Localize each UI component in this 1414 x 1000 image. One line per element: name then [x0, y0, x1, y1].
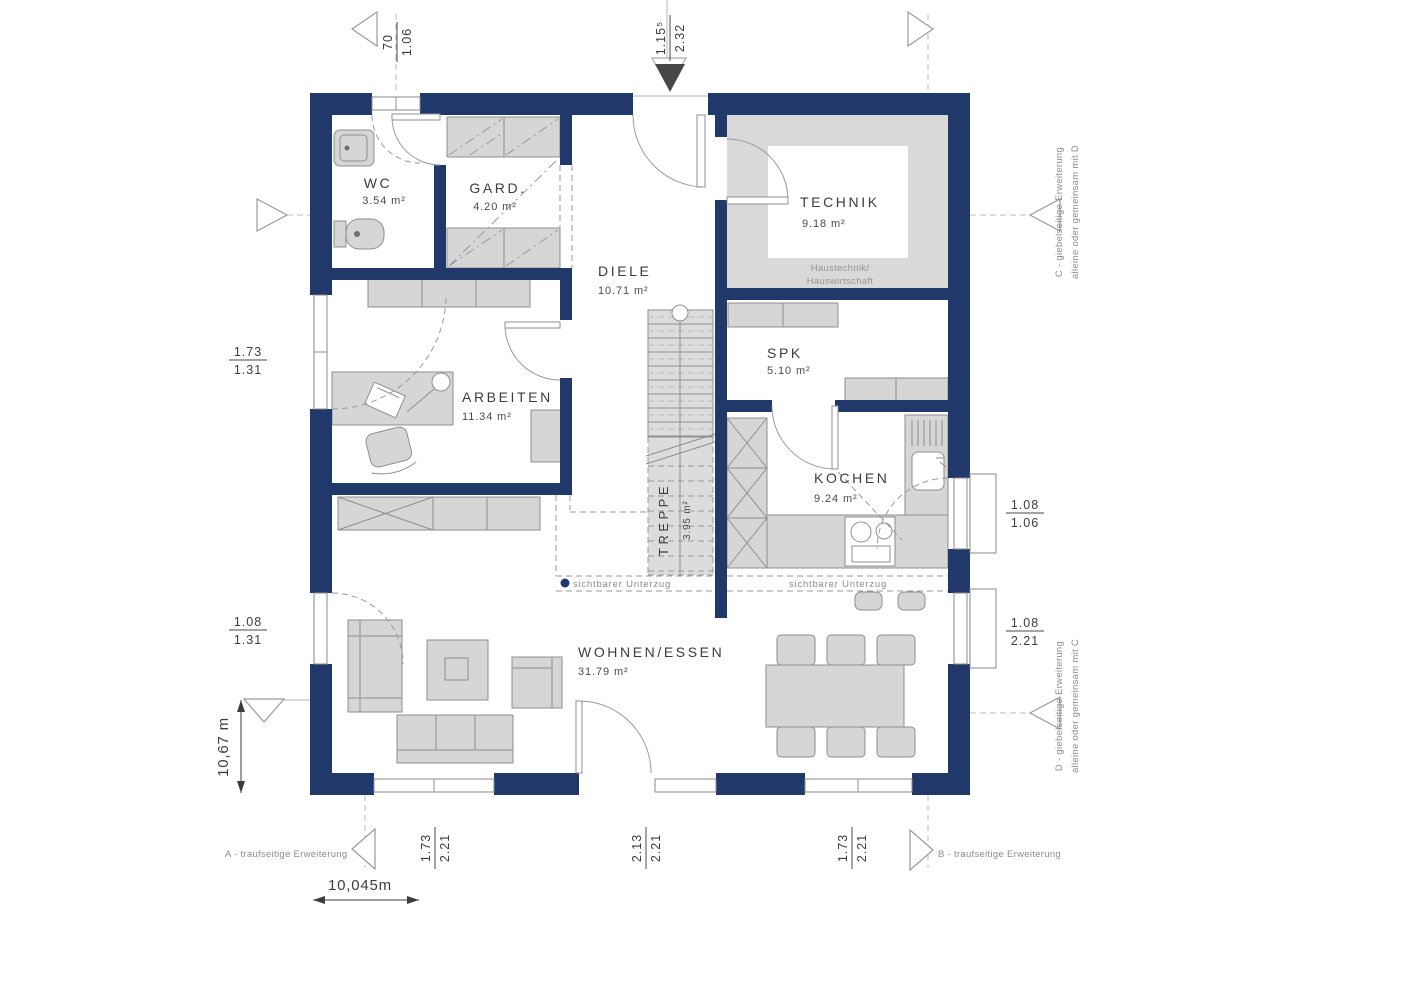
gard-area: 4.20 m² — [473, 201, 517, 213]
marker-triangle-bottom-right — [910, 830, 933, 870]
arbeiten-door-swing — [505, 325, 560, 380]
dim-overall-height: 10,67 m — [215, 700, 245, 793]
unterzug-dot — [561, 579, 570, 588]
window-essen-right — [954, 593, 967, 664]
dim-bottom-left-bottom: 2.21 — [438, 834, 452, 862]
wc-name: WC — [364, 175, 393, 191]
treppe-name: TREPPE — [656, 483, 671, 556]
unterzug-label-left: sichtbarer Unterzug — [573, 579, 671, 590]
wall-bottom-3 — [716, 773, 805, 795]
diele-name: DIELE — [598, 263, 651, 279]
extension-d-line1: D - giebelseitige Erweiterung — [1054, 641, 1065, 771]
dim-top-center-bottom: 2.32 — [673, 24, 687, 52]
extension-b-label: B - traufseitige Erweiterung — [938, 849, 1061, 860]
wall-left-2 — [310, 409, 332, 593]
extension-c-line2: alleine oder gemeinsam mit D — [1070, 145, 1081, 279]
technik-name: TECHNIK — [800, 194, 880, 210]
overall-width-label: 10,045m — [328, 877, 392, 894]
dim-top-left-top: 70 — [381, 34, 395, 50]
dining-chair-bottom-3 — [877, 727, 915, 757]
wall-top-2 — [420, 93, 633, 115]
kochen-area: 9.24 m² — [814, 493, 858, 505]
wc-area: 3.54 m² — [362, 195, 406, 207]
wall-diele-right-main — [715, 200, 727, 618]
spk-shelves — [728, 303, 948, 403]
dim-bottom-right-bottom: 2.21 — [855, 834, 869, 862]
floor-plan-drawing: WC 3.54 m² GARD. 4.20 m² DIELE 10.71 m² … — [0, 0, 1414, 1000]
dim-right-upper-top: 1.08 — [1011, 498, 1039, 512]
dim-right-lower: 1.08 2.21 — [1006, 616, 1044, 648]
wall-arbeiten-diele-upper — [560, 280, 572, 320]
dim-left-upper: 1.73 1.31 — [229, 345, 267, 377]
office-cabinet — [531, 410, 565, 462]
entrance-door-leaf — [697, 115, 705, 187]
spk-area: 5.10 m² — [767, 365, 811, 377]
dim-right-lower-bottom: 2.21 — [1011, 634, 1039, 648]
sofa-bottom — [397, 715, 513, 763]
dim-top-left-bottom: 1.06 — [400, 28, 414, 56]
technik-note-2: Hauswirtschaft — [807, 276, 874, 287]
overall-width-arrow-right — [407, 896, 419, 904]
office-lamp — [432, 373, 450, 391]
marker-triangle-left-lower — [244, 699, 284, 722]
dim-left-lower: 1.08 1.31 — [229, 615, 267, 647]
window-wc-swing — [372, 115, 420, 163]
wc-toilet-detail — [354, 231, 360, 237]
dining-chair-top-1 — [777, 635, 815, 665]
wall-diele-right-top — [715, 115, 727, 137]
gard-name: GARD. — [469, 180, 526, 196]
overall-height-arrow-top — [237, 700, 245, 712]
office-shelf — [368, 278, 530, 307]
spk-name: SPK — [767, 345, 803, 361]
dim-bottom-right-top: 1.73 — [836, 834, 850, 862]
overall-height-label: 10,67 m — [215, 717, 232, 777]
gard-open-dashes — [560, 165, 572, 268]
bar-stool-right — [898, 592, 925, 610]
wall-under-wc-gard — [332, 268, 572, 280]
dim-bottom-center: 2.13 2.21 — [630, 827, 663, 869]
dim-top-left: 70 1.06 — [381, 22, 414, 62]
wall-spk-kochen-left — [727, 400, 772, 412]
overall-width-arrow-left — [313, 896, 325, 904]
wall-top-3 — [708, 93, 970, 115]
dim-right-lower-top: 1.08 — [1011, 616, 1039, 630]
dining-chair-bottom-2 — [827, 727, 865, 757]
treppe-label: TREPPE — [656, 483, 671, 556]
wc-sink-faucet — [345, 146, 350, 151]
armchair — [512, 657, 562, 708]
wall-right-2 — [948, 549, 970, 593]
dim-bottom-center-bottom: 2.21 — [649, 834, 663, 862]
extension-a-label: A - traufseitige Erweiterung — [225, 849, 347, 860]
wall-under-arbeiten — [332, 483, 572, 495]
terrace-door-leaf — [576, 701, 582, 773]
dim-right-upper-bottom: 1.06 — [1011, 516, 1039, 530]
wall-left-3 — [310, 664, 332, 795]
dim-bottom-center-top: 2.13 — [630, 834, 644, 862]
marker-triangle-top-right — [908, 12, 933, 46]
wc-toilet-tank — [334, 221, 346, 247]
marker-triangle-left-upper — [257, 199, 287, 231]
kochen-name: KOCHEN — [814, 470, 890, 486]
wall-arbeiten-diele-lower — [560, 378, 572, 495]
technik-door-leaf — [727, 197, 788, 204]
spk-door-leaf — [832, 406, 838, 469]
arbeiten-name: ARBEITEN — [462, 389, 553, 405]
wall-bottom-2 — [494, 773, 579, 795]
wohnen-name: WOHNEN/ESSEN — [578, 644, 724, 660]
wall-right-3 — [948, 664, 970, 795]
entrance-door-swing — [633, 115, 705, 187]
arbeiten-door-leaf — [505, 322, 560, 328]
extension-d-line2: alleine oder gemeinsam mit C — [1070, 639, 1081, 773]
window-kitchen — [954, 478, 967, 549]
dining-chair-top-2 — [827, 635, 865, 665]
entrance-marker-icon — [655, 64, 685, 92]
marker-triangle-bottom-left — [352, 829, 375, 869]
arbeiten-area: 11.34 m² — [462, 411, 512, 423]
stairs-newel-circle — [672, 305, 688, 321]
window-essen-sill — [970, 589, 996, 668]
wc-toilet-bowl — [346, 219, 384, 249]
wall-left-1 — [310, 93, 332, 295]
unterzug-label-right: sichtbarer Unterzug — [789, 579, 887, 590]
wall-technik-spk — [727, 288, 948, 300]
dim-left-upper-top: 1.73 — [234, 345, 262, 359]
dim-bottom-right: 1.73 2.21 — [836, 827, 869, 869]
technik-area: 9.18 m² — [802, 218, 846, 230]
dim-left-upper-bottom: 1.31 — [234, 363, 262, 377]
dim-left-lower-bottom: 1.31 — [234, 633, 262, 647]
wall-spk-kochen-right — [835, 400, 948, 412]
wall-right-1 — [948, 93, 970, 478]
window-terrace-sidelight — [655, 779, 716, 792]
dining-chair-bottom-1 — [777, 727, 815, 757]
arbeiten-furniture — [332, 278, 565, 478]
extension-c-line1: C - giebelseitige Erweiterung — [1054, 147, 1065, 277]
spk-door-swing — [772, 406, 835, 469]
wohnen-area: 31.79 m² — [578, 666, 629, 678]
window-wohnen-left — [314, 593, 327, 664]
dim-overall-width: 10,045m — [313, 877, 419, 904]
terrace-door-swing — [579, 701, 651, 773]
treppe-area: 3.95 m² — [682, 500, 693, 540]
dining-chair-top-3 — [877, 635, 915, 665]
marker-triangle-top-left — [352, 12, 377, 46]
dining-table — [766, 665, 904, 727]
dim-right-upper: 1.08 1.06 — [1006, 498, 1044, 530]
diele-open-dashes — [556, 495, 648, 576]
treppe-area-label: 3.95 m² — [682, 500, 693, 540]
wc-door-leaf — [392, 114, 440, 120]
dim-bottom-left: 1.73 2.21 — [419, 827, 452, 869]
dim-bottom-left-top: 1.73 — [419, 834, 433, 862]
wall-wc-gard — [434, 165, 446, 268]
wall-gard-diele — [560, 115, 572, 165]
office-chair — [362, 425, 417, 478]
dim-top-center: 1.15⁵ 2.32 — [654, 15, 687, 61]
floor-plan-page: WC 3.54 m² GARD. 4.20 m² DIELE 10.71 m² … — [0, 0, 1414, 1000]
diele-area: 10.71 m² — [598, 285, 649, 297]
window-kitchen-sill — [970, 474, 996, 553]
dim-left-lower-top: 1.08 — [234, 615, 262, 629]
bar-stool-left — [855, 592, 882, 610]
overall-height-arrow-bottom — [237, 781, 245, 793]
technik-note-1: Haustechnik/ — [811, 263, 870, 274]
dim-top-center-top: 1.15⁵ — [654, 21, 668, 56]
coffee-table — [427, 640, 488, 700]
